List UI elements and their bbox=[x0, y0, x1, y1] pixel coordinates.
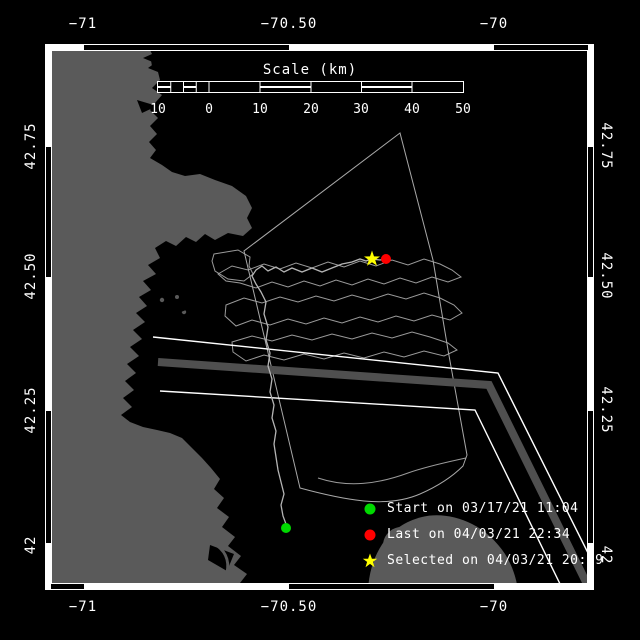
legend-item-selected[interactable]: Selected on 04/03/21 20:19 bbox=[362, 551, 604, 570]
scale-bar-title: Scale (km) bbox=[263, 63, 357, 77]
sanctuary-boundary bbox=[244, 133, 467, 502]
star-icon bbox=[362, 553, 378, 569]
axis-label-left-lat-0: 42.75 bbox=[24, 122, 38, 169]
axis-label-bottom-lon-0: −71 bbox=[69, 600, 97, 614]
axis-label-top-lon-1: −70.50 bbox=[261, 17, 318, 31]
axis-label-left-lat-2: 42.25 bbox=[24, 386, 38, 433]
start-marker[interactable] bbox=[281, 523, 291, 533]
legend-label-selected: Selected on 04/03/21 20:19 bbox=[387, 553, 604, 568]
last-marker[interactable] bbox=[381, 254, 391, 264]
legend-label-start: Start on 03/17/21 11:04 bbox=[387, 501, 579, 516]
scale-tick-6: 50 bbox=[455, 103, 471, 117]
legend-label-last: Last on 04/03/21 22:34 bbox=[387, 527, 570, 542]
axis-label-top-lon-0: −71 bbox=[69, 17, 97, 31]
legend: Start on 03/17/21 11:04 Last on 04/03/21… bbox=[362, 499, 604, 570]
scale-tick-5: 40 bbox=[404, 103, 420, 117]
scale-tick-1: 0 bbox=[205, 103, 213, 117]
axis-label-left-lat-1: 42.50 bbox=[24, 252, 38, 299]
scale-tick-4: 30 bbox=[353, 103, 369, 117]
island bbox=[175, 295, 179, 299]
map-window: −71 −70.50 −70 −71 −70.50 −70 42.75 42.5… bbox=[0, 0, 640, 640]
scale-tick-2: 10 bbox=[252, 103, 268, 117]
island bbox=[160, 298, 164, 302]
axis-label-right-lat-1: 42.50 bbox=[599, 252, 613, 299]
circle-icon bbox=[362, 501, 378, 517]
mainland-coast bbox=[52, 50, 252, 590]
axis-label-left-lat-3: 42 bbox=[24, 536, 38, 555]
legend-item-last[interactable]: Last on 04/03/21 22:34 bbox=[362, 525, 604, 544]
scale-tick-3: 20 bbox=[303, 103, 319, 117]
axis-label-bottom-lon-1: −70.50 bbox=[261, 600, 318, 614]
axis-label-top-lon-2: −70 bbox=[480, 17, 508, 31]
axis-label-right-lat-2: 42.25 bbox=[599, 386, 613, 433]
axis-label-right-lat-0: 42.75 bbox=[599, 122, 613, 169]
scale-bar bbox=[158, 82, 464, 93]
scale-tick-0: 10 bbox=[150, 103, 166, 117]
legend-item-start[interactable]: Start on 03/17/21 11:04 bbox=[362, 499, 604, 518]
axis-label-bottom-lon-2: −70 bbox=[480, 600, 508, 614]
circle-icon bbox=[362, 527, 378, 543]
